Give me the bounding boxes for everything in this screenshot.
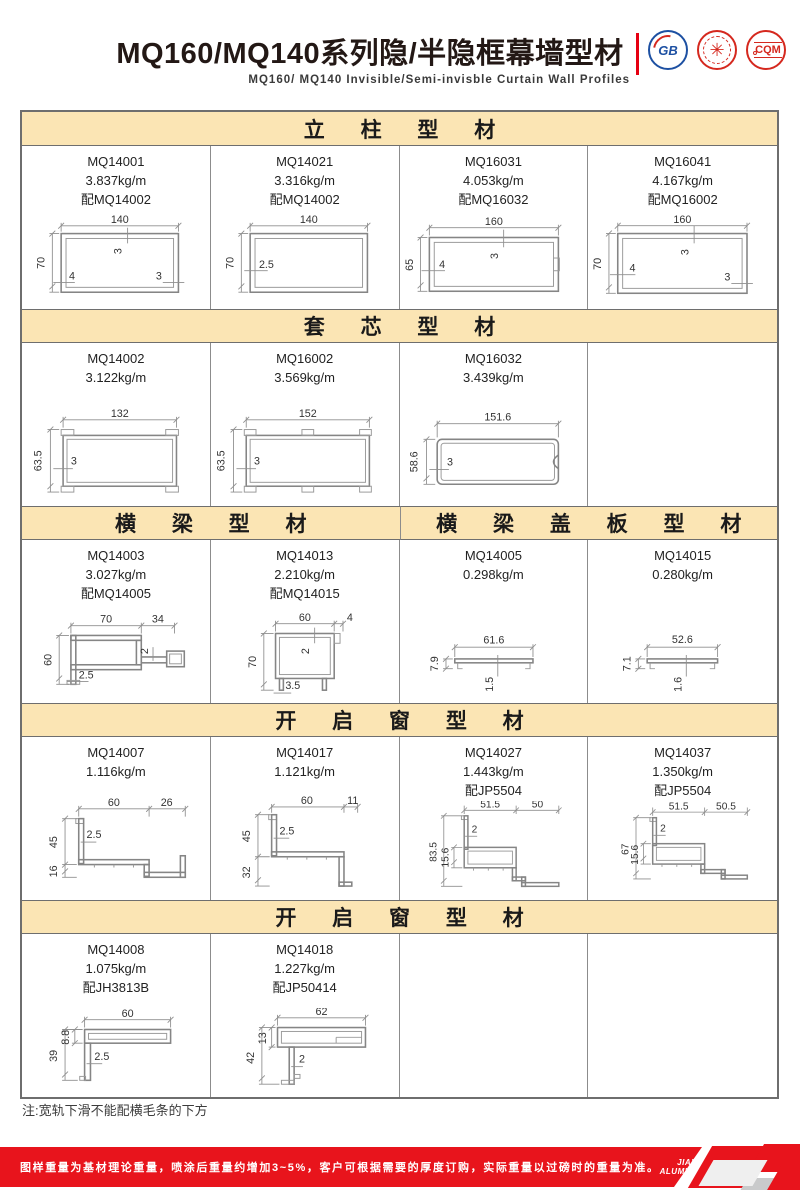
cqm-logo-icon: CQM	[746, 30, 786, 70]
svg-text:3: 3	[156, 271, 162, 283]
profile-weight: 0.298kg/m	[402, 566, 586, 585]
swoosh-icon	[647, 29, 689, 71]
profile-drawing: 151.6 58.6 3	[402, 403, 586, 503]
svg-text:61.6: 61.6	[483, 634, 504, 646]
seal-ring-icon	[703, 36, 731, 64]
profile-drawing: 52.6 7.1 1.6	[590, 610, 775, 700]
page-subtitle: MQ160/ MQ140 Invisible/Semi-invisble Cur…	[110, 74, 630, 86]
profile-weight: 3.837kg/m	[24, 172, 208, 191]
svg-text:70: 70	[224, 257, 236, 269]
profile-table: 立 柱 型 材 MQ14001 3.837kg/m 配MQ14002 140 7…	[20, 110, 779, 1099]
profile-drawing: 62 42 13 2	[213, 1008, 397, 1094]
svg-text:2: 2	[139, 648, 151, 654]
profile-info: MQ14015 0.280kg/m	[590, 547, 775, 585]
svg-text:60: 60	[299, 612, 311, 624]
section-header-columns: 立 柱 型 材	[22, 112, 777, 146]
svg-text:34: 34	[152, 614, 164, 626]
profile-model: MQ14027	[402, 744, 586, 763]
svg-text:60: 60	[301, 795, 313, 807]
profile-model: MQ14017	[213, 744, 397, 763]
svg-text:26: 26	[161, 797, 173, 809]
svg-text:152: 152	[299, 408, 317, 420]
profile-weight: 4.053kg/m	[402, 172, 586, 191]
svg-text:63.5: 63.5	[215, 450, 227, 471]
profile-weight: 1.075kg/m	[24, 960, 208, 979]
svg-text:1.5: 1.5	[483, 677, 495, 692]
svg-text:70: 70	[247, 656, 259, 668]
profile-model: MQ14002	[24, 350, 208, 369]
quality-seal-logo-icon: ✳	[697, 30, 737, 70]
gb-certification-logo-icon: GB	[648, 30, 688, 70]
profile-cell-mq14021: MQ14021 3.316kg/m 配MQ14002 140 70 2.5	[211, 146, 400, 309]
svg-text:50: 50	[531, 801, 543, 810]
profile-model: MQ14013	[213, 547, 397, 566]
profile-cell-mq14001: MQ14001 3.837kg/m 配MQ14002 140 70 3 4 3	[22, 146, 211, 309]
profile-cell-mq14005: MQ14005 0.298kg/m 61.6 7.9 1.5	[400, 540, 589, 703]
svg-text:3: 3	[446, 457, 452, 469]
profile-weight: 1.350kg/m	[590, 763, 775, 782]
profile-weight: 1.116kg/m	[24, 763, 208, 782]
profile-pair: 配JP5504	[402, 782, 586, 801]
profile-pair: 配MQ14015	[213, 585, 397, 604]
svg-text:4: 4	[630, 263, 636, 275]
profile-info: MQ14002 3.122kg/m	[24, 350, 208, 388]
svg-text:2: 2	[471, 824, 477, 835]
profile-model: MQ14021	[213, 153, 397, 172]
svg-text:15.6: 15.6	[440, 847, 451, 867]
profile-cell-mq16032: MQ16032 3.439kg/m 151.6 58.6 3	[400, 343, 589, 506]
profile-info: MQ14017 1.121kg/m	[213, 744, 397, 782]
svg-text:151.6: 151.6	[484, 412, 511, 424]
profile-pair: 配MQ14005	[24, 585, 208, 604]
svg-text:4: 4	[439, 259, 445, 271]
profile-pair: 配JH3813B	[24, 979, 208, 998]
svg-text:2.5: 2.5	[259, 259, 274, 271]
profile-info: MQ14037 1.350kg/m 配JP5504	[590, 744, 775, 801]
profile-model: MQ16002	[213, 350, 397, 369]
profile-model: MQ14015	[590, 547, 775, 566]
profile-drawing: 60 4 70 2 3.5	[213, 610, 397, 700]
profile-model: MQ14001	[24, 153, 208, 172]
profile-cell-mq14007: MQ14007 1.116kg/m 60 26 45 16 2.5	[22, 737, 211, 900]
profile-model: MQ16032	[402, 350, 586, 369]
title-block: MQ160/MQ140系列隐/半隐框幕墙型材 MQ160/ MQ140 Invi…	[110, 30, 630, 86]
profile-cell-mq14027: MQ14027 1.443kg/m 配JP5504 51.5 50 83.5 1…	[400, 737, 589, 900]
svg-text:3: 3	[488, 253, 500, 259]
page-header: MQ160/MQ140系列隐/半隐框幕墙型材 MQ160/ MQ140 Invi…	[0, 0, 800, 100]
page-title: MQ160/MQ140系列隐/半隐框幕墙型材	[110, 30, 630, 72]
footnote: 注:宽轨下滑不能配横毛条的下方	[22, 1100, 208, 1119]
svg-text:160: 160	[484, 216, 502, 228]
svg-text:50.5: 50.5	[716, 801, 736, 812]
svg-text:8.8: 8.8	[60, 1030, 72, 1045]
svg-text:3.5: 3.5	[285, 680, 300, 692]
svg-text:4: 4	[347, 612, 353, 624]
svg-text:70: 70	[36, 257, 48, 269]
svg-text:2.5: 2.5	[94, 1051, 109, 1063]
profile-drawing: 140 70 3 4 3	[24, 212, 208, 306]
profile-cell-mq16031: MQ16031 4.053kg/m 配MQ16032 160 65 3 4	[400, 146, 589, 309]
empty-cell	[588, 343, 777, 506]
profile-info: MQ16041 4.167kg/m 配MQ16002	[590, 153, 775, 210]
svg-text:2: 2	[660, 823, 666, 834]
svg-text:62: 62	[315, 1008, 327, 1018]
profile-cell-mq14017: MQ14017 1.121kg/m 60 11 45 32 2.5	[211, 737, 400, 900]
profile-info: MQ14027 1.443kg/m 配JP5504	[402, 744, 586, 801]
profile-drawing: 132 63.5 3	[24, 403, 208, 503]
svg-text:160: 160	[674, 214, 692, 226]
svg-text:52.6: 52.6	[672, 634, 693, 646]
profile-weight: 3.122kg/m	[24, 369, 208, 388]
profile-weight: 2.210kg/m	[213, 566, 397, 585]
profile-model: MQ16041	[590, 153, 775, 172]
profile-info: MQ14008 1.075kg/m 配JH3813B	[24, 941, 208, 998]
profile-pair: 配JP50414	[213, 979, 397, 998]
svg-text:2: 2	[299, 1054, 305, 1066]
svg-text:60: 60	[42, 654, 54, 666]
profile-model: MQ14037	[590, 744, 775, 763]
footer-bar: 图样重量为基材理论重量，喷涂后重量约增加3~5%，客户可根据需要的厚度订购，实际…	[0, 1147, 702, 1187]
svg-text:3: 3	[725, 272, 731, 284]
profile-drawing: 60 39 8.8 2.5	[24, 1008, 208, 1094]
svg-text:58.6: 58.6	[408, 451, 420, 472]
svg-text:2.5: 2.5	[87, 829, 102, 841]
profile-cell-mq14037: MQ14037 1.350kg/m 配JP5504 51.5 50.5 67 1…	[588, 737, 777, 900]
profile-model: MQ14007	[24, 744, 208, 763]
footer-disclaimer: 图样重量为基材理论重量，喷涂后重量约增加3~5%，客户可根据需要的厚度订购，实际…	[20, 1159, 660, 1175]
svg-text:3: 3	[680, 249, 692, 255]
profile-cell-mq14013: MQ14013 2.210kg/m 配MQ14015 60 4 70 2 3.5	[211, 540, 400, 703]
svg-text:70: 70	[592, 258, 604, 270]
profile-drawing: 61.6 7.9 1.5	[402, 610, 586, 700]
profile-pair: 配MQ14002	[24, 191, 208, 210]
profile-cell-mq14002: MQ14002 3.122kg/m 132 63.5 3	[22, 343, 211, 506]
svg-text:51.5: 51.5	[480, 801, 500, 810]
svg-text:7.1: 7.1	[622, 656, 634, 671]
profile-weight: 3.439kg/m	[402, 369, 586, 388]
section-header-beam-covers: 横 梁 盖 板 型 材	[400, 506, 778, 540]
profile-pair: 配JP5504	[590, 782, 775, 801]
profile-drawing: 51.5 50 83.5 15.6 2	[402, 801, 586, 897]
profile-info: MQ14005 0.298kg/m	[402, 547, 586, 585]
empty-cell	[400, 934, 589, 1097]
svg-text:132: 132	[111, 408, 129, 420]
profile-drawing: 60 11 45 32 2.5	[213, 795, 397, 897]
svg-text:7.9: 7.9	[429, 656, 441, 671]
svg-text:3: 3	[254, 456, 260, 468]
profile-weight: 1.443kg/m	[402, 763, 586, 782]
svg-text:13: 13	[257, 1032, 269, 1044]
svg-text:2.5: 2.5	[279, 825, 294, 837]
profile-drawing: 160 70 3 4 3	[590, 212, 775, 306]
profile-weight: 3.027kg/m	[24, 566, 208, 585]
svg-text:1.6: 1.6	[673, 677, 685, 692]
svg-text:60: 60	[108, 797, 120, 809]
profile-cell-mq14015: MQ14015 0.280kg/m 52.6 7.1 1.6	[588, 540, 777, 703]
section-header-vents-2: 开 启 窗 型 材	[22, 900, 777, 934]
profile-model: MQ14018	[213, 941, 397, 960]
profile-cell-mq16041: MQ16041 4.167kg/m 配MQ16002 160 70 3 4 3	[588, 146, 777, 309]
profile-weight: 0.280kg/m	[590, 566, 775, 585]
profile-pair: 配MQ16032	[402, 191, 586, 210]
profile-weight: 3.316kg/m	[213, 172, 397, 191]
profile-cell-mq14008: MQ14008 1.075kg/m 配JH3813B 60 39 8.8 2.5	[22, 934, 211, 1097]
profile-weight: 3.569kg/m	[213, 369, 397, 388]
profile-info: MQ14018 1.227kg/m 配JP50414	[213, 941, 397, 998]
svg-text:11: 11	[347, 795, 358, 807]
section-header-vents-1: 开 启 窗 型 材	[22, 703, 777, 737]
profile-pair: 配MQ16002	[590, 191, 775, 210]
profile-model: MQ14003	[24, 547, 208, 566]
profile-cell-mq16002: MQ16002 3.569kg/m 152 63.5 3	[211, 343, 400, 506]
svg-text:2: 2	[300, 648, 312, 654]
profile-info: MQ14013 2.210kg/m 配MQ14015	[213, 547, 397, 604]
svg-text:3: 3	[113, 248, 125, 254]
svg-text:2.5: 2.5	[79, 669, 94, 681]
svg-text:42: 42	[245, 1052, 257, 1064]
profile-weight: 1.121kg/m	[213, 763, 397, 782]
svg-text:4: 4	[69, 271, 75, 283]
profile-weight: 1.227kg/m	[213, 960, 397, 979]
svg-text:45: 45	[48, 836, 60, 848]
profile-drawing: 51.5 50.5 67 15.6 2	[590, 801, 775, 897]
profile-cell-mq14003: MQ14003 3.027kg/m 配MQ14005 70 34 60 2.5 …	[22, 540, 211, 703]
profile-info: MQ14007 1.116kg/m	[24, 744, 208, 782]
cqm-logo-label: CQM	[754, 42, 782, 58]
profile-info: MQ16031 4.053kg/m 配MQ16032	[402, 153, 586, 210]
svg-text:16: 16	[48, 865, 60, 877]
profile-drawing: 140 70 2.5	[213, 212, 397, 306]
profile-drawing: 160 65 3 4	[402, 212, 586, 306]
svg-text:60: 60	[122, 1008, 134, 1020]
svg-text:45: 45	[241, 830, 253, 842]
profile-info: MQ14021 3.316kg/m 配MQ14002	[213, 153, 397, 210]
profile-drawing: 60 26 45 16 2.5	[24, 795, 208, 897]
profile-model: MQ16031	[402, 153, 586, 172]
profile-cell-mq14018: MQ14018 1.227kg/m 配JP50414 62 42 13 2	[211, 934, 400, 1097]
profile-pair: 配MQ14002	[213, 191, 397, 210]
svg-text:15.6: 15.6	[630, 844, 641, 864]
svg-text:65: 65	[403, 259, 415, 271]
section-header-beams: 横 梁 型 材	[22, 506, 400, 540]
profile-info: MQ14003 3.027kg/m 配MQ14005	[24, 547, 208, 604]
profile-drawing: 70 34 60 2.5 2	[24, 610, 208, 700]
svg-text:63.5: 63.5	[33, 450, 45, 471]
profile-info: MQ14001 3.837kg/m 配MQ14002	[24, 153, 208, 210]
svg-text:51.5: 51.5	[669, 801, 689, 812]
section-header-cores: 套 芯 型 材	[22, 309, 777, 343]
svg-text:32: 32	[241, 866, 253, 878]
certification-logos: GB ✳ CQM	[648, 30, 786, 70]
svg-text:3: 3	[71, 456, 77, 468]
svg-text:70: 70	[100, 614, 112, 626]
profile-weight: 4.167kg/m	[590, 172, 775, 191]
catalog-page: MQ160/MQ140系列隐/半隐框幕墙型材 MQ160/ MQ140 Invi…	[0, 0, 800, 1200]
profile-model: MQ14005	[402, 547, 586, 566]
profile-model: MQ14008	[24, 941, 208, 960]
profile-info: MQ16002 3.569kg/m	[213, 350, 397, 388]
profile-info: MQ16032 3.439kg/m	[402, 350, 586, 388]
profile-drawing: 152 63.5 3	[213, 403, 397, 503]
empty-cell	[588, 934, 777, 1097]
svg-text:83.5: 83.5	[428, 841, 439, 861]
svg-text:140: 140	[300, 214, 318, 226]
svg-text:39: 39	[48, 1050, 60, 1062]
svg-text:140: 140	[111, 214, 129, 226]
title-divider	[636, 33, 639, 75]
